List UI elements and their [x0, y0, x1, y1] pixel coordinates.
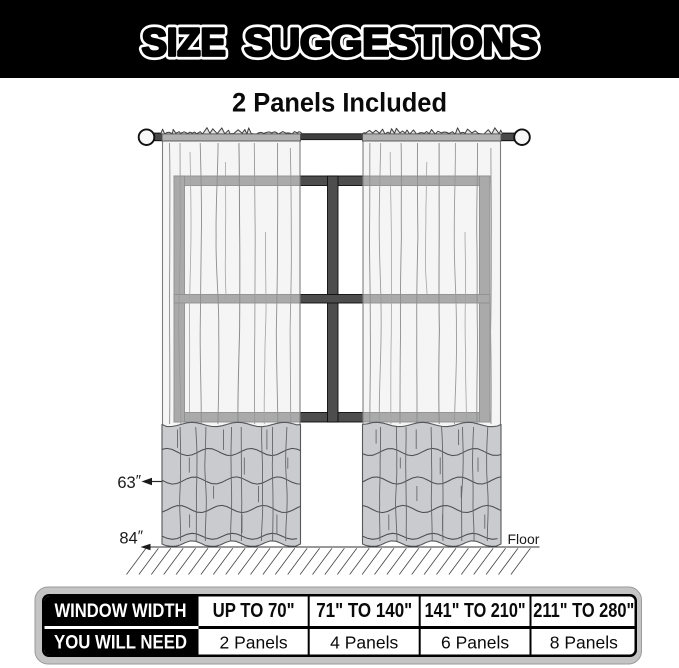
svg-text:Floor: Floor — [508, 531, 540, 547]
svg-text:211" TO 280": 211" TO 280" — [533, 600, 634, 622]
svg-text:UP TO 70": UP TO 70" — [213, 600, 295, 622]
svg-text:WINDOW WIDTH: WINDOW WIDTH — [55, 600, 187, 622]
svg-text:8 Panels: 8 Panels — [550, 633, 618, 653]
svg-text:SIZE: SIZE — [142, 22, 226, 65]
svg-text:71" TO 140": 71" TO 140" — [316, 600, 412, 622]
svg-text:2 Panels Included: 2 Panels Included — [232, 88, 447, 118]
svg-text:SUGGESTIONS: SUGGESTIONS — [244, 22, 538, 65]
svg-text:4 Panels: 4 Panels — [330, 633, 398, 653]
svg-text:141" TO 210": 141" TO 210" — [425, 600, 526, 622]
svg-text:2 Panels: 2 Panels — [220, 633, 288, 653]
svg-text:YOU WILL NEED: YOU WILL NEED — [54, 632, 187, 654]
svg-text:6 Panels: 6 Panels — [441, 633, 509, 653]
